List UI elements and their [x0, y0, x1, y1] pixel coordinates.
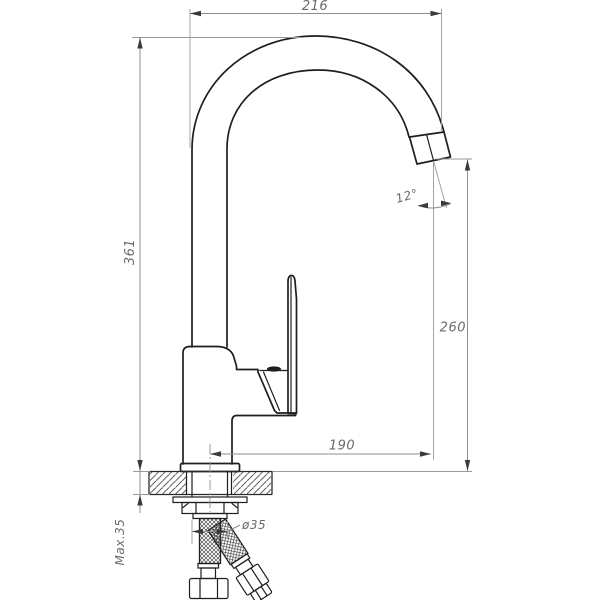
dim-361: 361	[123, 38, 303, 514]
shank-collar	[193, 514, 227, 519]
dim-190: 190	[210, 161, 434, 512]
angled-cap-facet-r	[261, 587, 266, 595]
aerator-divider	[427, 135, 434, 161]
counter-hatch-left	[150, 472, 186, 494]
hose-end-nut	[190, 579, 229, 599]
dim-361-label: 361	[123, 239, 138, 265]
dim-angle12-label: 12°	[394, 186, 420, 206]
dim-216: 216	[190, 0, 442, 148]
counter-hatch-right	[233, 472, 271, 494]
drawing-canvas: 216 361 Max.35 260 190 12°	[0, 0, 600, 600]
angled-cap-facet-l	[256, 591, 261, 599]
dim-max35-label: Max.35	[113, 519, 127, 566]
angled-end-cap	[250, 583, 272, 600]
handle-pivot-dot	[267, 366, 281, 371]
hose-ferrule	[201, 568, 216, 579]
angled-nut-facet-r	[251, 568, 262, 585]
dim-260-label: 260	[440, 321, 466, 336]
faucet-body	[183, 347, 296, 465]
countertop-section	[149, 472, 472, 498]
dim-190-label: 190	[329, 439, 355, 454]
faucet-technical-drawing: 216 361 Max.35 260 190 12°	[0, 0, 600, 600]
dim-216-label: 216	[302, 0, 328, 14]
handle-lever	[288, 276, 297, 414]
faucet-outline-group	[181, 36, 451, 472]
mounting-nut-chamfer-l	[183, 504, 188, 508]
mounting-nut-chamfer-r	[232, 504, 237, 508]
dim-angle12: 12°	[394, 161, 451, 208]
spout-inner-edge	[227, 70, 409, 347]
hose-ferrule-band	[198, 564, 219, 569]
angled-nut-facet-l	[243, 574, 254, 591]
mounting-hardware	[173, 497, 275, 600]
dim-dia35-label: ø35	[241, 518, 266, 532]
dim-max35: Max.35	[113, 472, 150, 566]
